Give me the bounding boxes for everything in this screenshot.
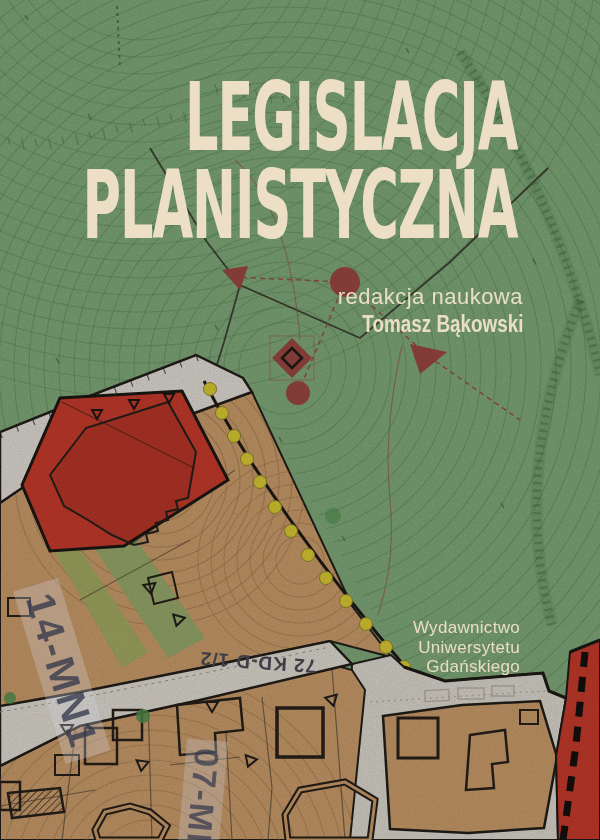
publisher-line: Wydawnictwo <box>413 618 520 638</box>
editor-role-label: redakcja naukowa <box>327 283 523 310</box>
publisher-line: Gdańskiego <box>413 657 520 677</box>
editor-block: redakcja naukowa Tomasz Bąkowski <box>327 283 523 338</box>
title-line-2: PLANISTYCZNA <box>82 162 517 250</box>
book-cover: 14-MN1 07-MN 72 KD-D 1/2 LEGISLACJA PLAN… <box>0 0 600 840</box>
book-title: LEGISLACJA PLANISTYCZNA <box>0 74 517 250</box>
publisher-block: Wydawnictwo Uniwersytetu Gdańskiego <box>413 618 520 677</box>
publisher-line: Uniwersytetu <box>413 638 520 658</box>
title-line-1: LEGISLACJA <box>82 74 517 162</box>
editor-name: Tomasz Bąkowski <box>362 310 523 338</box>
